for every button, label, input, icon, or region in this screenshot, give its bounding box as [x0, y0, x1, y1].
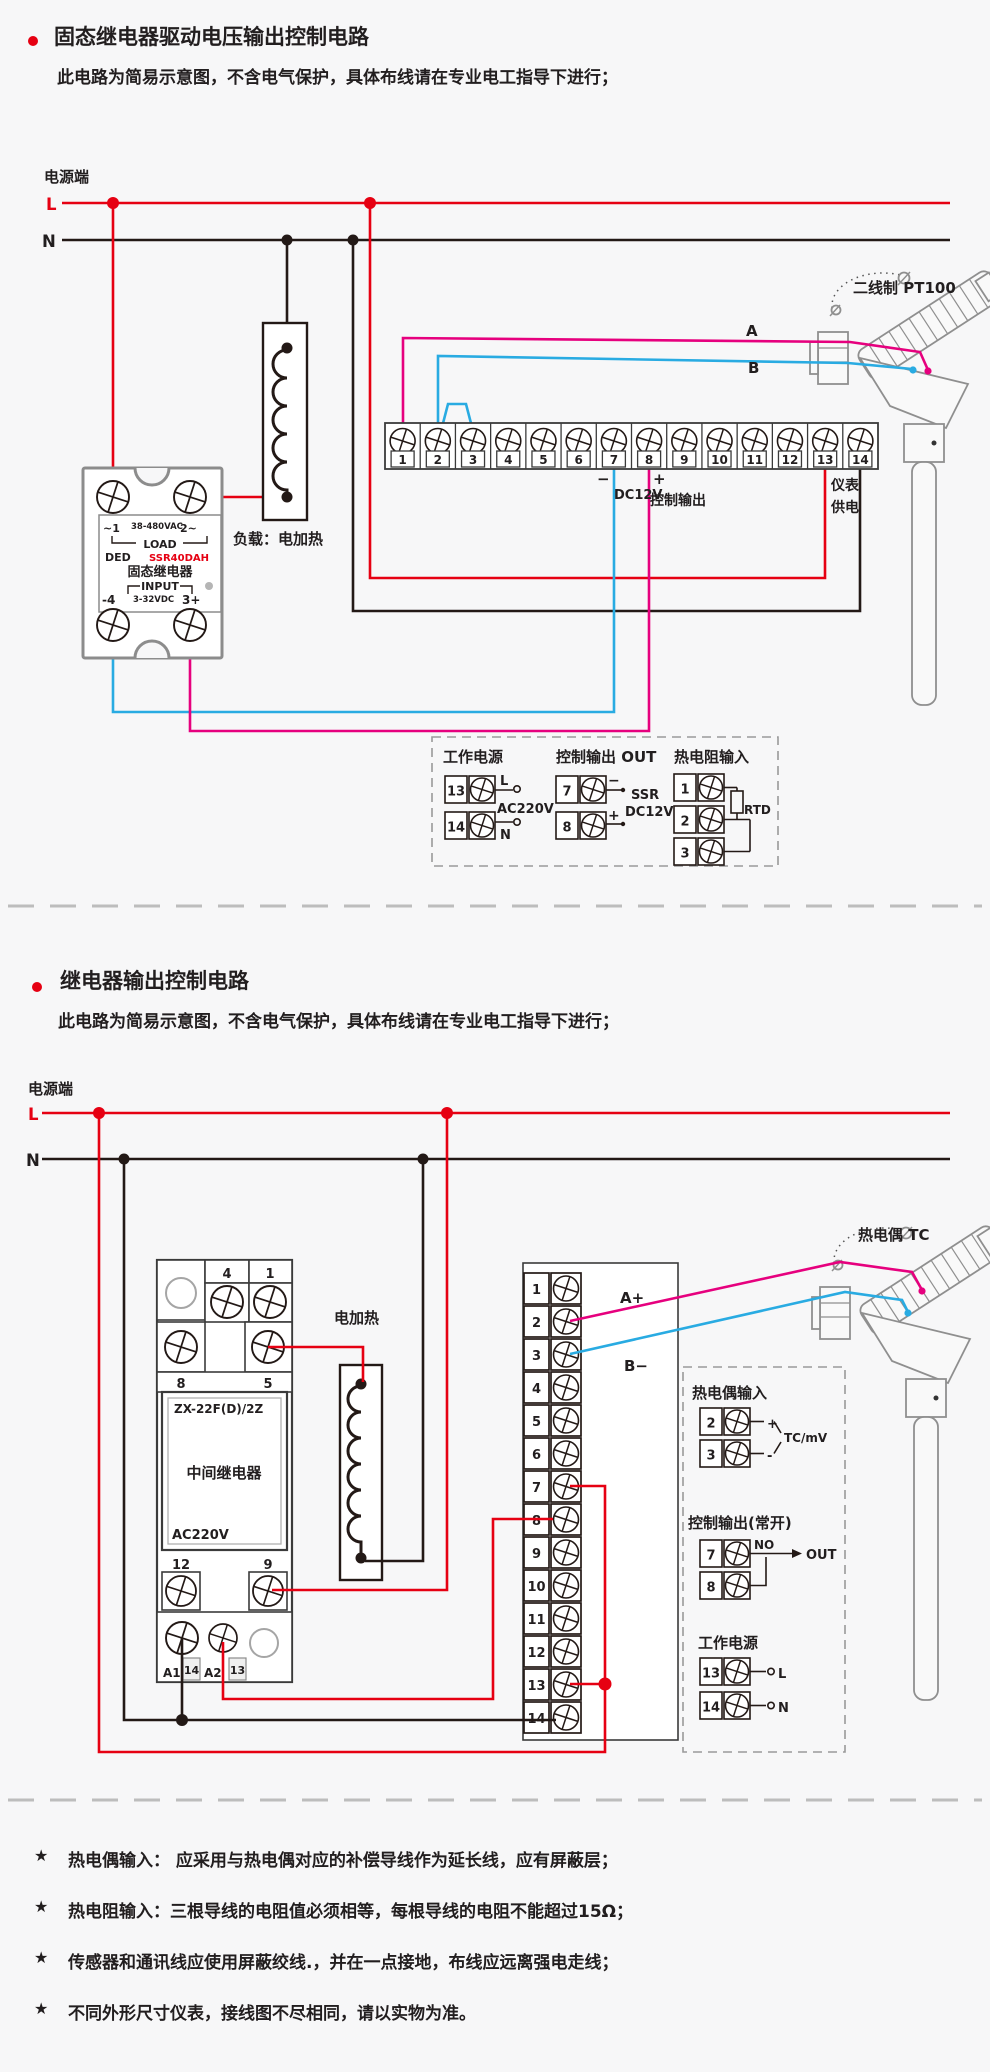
relay-t5: 5	[263, 1377, 272, 1392]
junction-dot	[119, 1154, 130, 1165]
terminal-number: 9	[532, 1547, 541, 1562]
legend-L-label: L	[778, 1667, 786, 1682]
terminal-number: 6	[532, 1448, 541, 1463]
terminal-number: 8	[706, 1581, 715, 1596]
ssr-model: SSR40DAH	[149, 553, 209, 564]
junction-dot	[282, 235, 293, 246]
wire-end-dot	[918, 1287, 925, 1294]
tc-sensor-icon	[812, 1223, 990, 1700]
terminal-number: 13	[702, 1667, 720, 1682]
legend-tcmv-label: TC/mV	[784, 1431, 828, 1445]
terminal-number: 2	[680, 815, 689, 830]
junction-dot	[441, 1107, 453, 1119]
wire-A-label: A	[746, 322, 758, 340]
legend-ac220-label: AC220V	[497, 802, 554, 817]
junction-dot	[418, 1154, 429, 1165]
terminal-number: 14	[447, 821, 465, 836]
relay-t1: 1	[265, 1267, 274, 1282]
heater-load-2	[340, 1365, 382, 1580]
plus-label: +	[653, 470, 666, 488]
terminal-number: 2	[532, 1316, 541, 1331]
circuit-relay-output: 1234567891011121314 4 1 8 5 ZX-22F(D)	[26, 1080, 990, 1752]
terminal-number: 10	[711, 453, 728, 467]
terminal-number: 11	[746, 453, 763, 467]
terminal-number: 10	[527, 1580, 545, 1595]
wire-A	[403, 338, 928, 431]
ssr-name: 固态继电器	[127, 564, 193, 580]
legend-output-title: 控制输出 OUT	[556, 748, 657, 766]
terminal-number: 1	[532, 1283, 541, 1298]
power-source-label: 电源端	[44, 168, 89, 186]
legend-ssr: SSR	[631, 788, 659, 803]
ssr-ac-right: 2~	[180, 522, 197, 535]
relay-t4: 4	[222, 1267, 231, 1282]
terminal-number: 2	[434, 453, 442, 467]
terminal-number: 13	[527, 1679, 545, 1694]
solid-state-relay: ~1 38-480VAC 2~ LOAD DED SSR40DAH 固态继电器 …	[83, 468, 222, 658]
ssr-ac-range: 38-480VAC	[131, 522, 183, 532]
terminal-number: 9	[680, 453, 688, 467]
ssr-dc-range: 3-32VDC	[133, 595, 174, 605]
terminal-number: 13	[447, 785, 465, 800]
junction-dot	[348, 235, 359, 246]
ssr-input-label: INPUT	[141, 580, 179, 593]
terminal-number: 1	[398, 453, 406, 467]
wire-end-dot	[909, 366, 916, 373]
line-N-label: N	[26, 1151, 40, 1170]
terminal-number: 1	[680, 783, 689, 798]
junction-dot	[93, 1107, 105, 1119]
wire-ssr-to-term8	[190, 469, 649, 731]
arrow-icon	[792, 1549, 802, 1558]
relay-t12: 12	[172, 1558, 190, 1573]
minus-label: −	[597, 470, 610, 488]
legend-power-title: 工作电源	[443, 748, 503, 766]
meter-power-label2: 供电	[830, 499, 859, 516]
line-L-label: L	[46, 195, 57, 214]
wire-B-label: B	[748, 359, 759, 377]
ctrl-out-label: 控制输出	[650, 492, 706, 509]
relay-13: 13	[230, 1664, 245, 1677]
power-source-label: 电源端	[28, 1080, 73, 1098]
legend-plus: +	[608, 808, 620, 824]
ssr-dc-right: 3+	[182, 593, 200, 607]
relay-model: ZX-22F(D)/2Z	[174, 1402, 264, 1416]
terminal-number: 14	[702, 1701, 720, 1716]
relay-14: 14	[184, 1664, 200, 1677]
ssr-brand: DED	[105, 551, 131, 564]
legend-box-2: 热电偶输入 23781314 + - TC/mV 控制输出(常开) NO OUT…	[683, 1367, 845, 1752]
terminal-number: 5	[532, 1415, 541, 1430]
line-N-label: N	[42, 232, 56, 251]
load-label: 负载：电加热	[233, 530, 323, 548]
terminal-number: 8	[532, 1514, 541, 1529]
terminal-number: 3	[680, 847, 689, 862]
terminal-number: 8	[562, 821, 571, 836]
sensor-label: 热电偶 TC	[858, 1226, 929, 1244]
ssr-load-label: LOAD	[143, 538, 176, 551]
legend-power-title: 工作电源	[698, 1634, 758, 1652]
legend-box-1: 工作电源 131478 L AC220V N 控制输出 OUT − SSR DC…	[432, 737, 778, 866]
terminal-number: 4	[504, 453, 512, 467]
page: 固态继电器驱动电压输出控制电路 此电路为简易示意图，不含电气保护，具体布线请在专…	[0, 0, 990, 2072]
ssr-ac-left: ~1	[103, 522, 120, 535]
relay-a1: A1	[163, 1666, 181, 1680]
legend-rtd-title: 热电阻输入	[674, 748, 749, 766]
line-L-label: L	[28, 1105, 39, 1124]
legend-N-label: N	[500, 828, 511, 843]
legend-out-label: OUT	[806, 1548, 837, 1563]
legend-tc-minus: -	[767, 1449, 772, 1464]
terminal-number: 3	[706, 1449, 715, 1464]
junction-dot	[364, 197, 376, 209]
heater-label: 电加热	[334, 1309, 379, 1327]
terminal-number: 2	[706, 1417, 715, 1432]
wire-A-label: A+	[620, 1289, 644, 1307]
terminal-number: 6	[574, 453, 582, 467]
heater-load	[263, 323, 307, 520]
terminal-number: 7	[532, 1481, 541, 1496]
terminal-strip-horizontal: 1234567891011121314	[385, 423, 878, 469]
terminal-number: 7	[610, 453, 618, 467]
legend-tc-title: 热电偶输入	[692, 1384, 767, 1402]
ssr-dc-left: -4	[102, 593, 115, 607]
terminal-number: 5	[539, 453, 547, 467]
sensor-label: 二线制 PT100	[853, 279, 956, 297]
junction-dot	[599, 1678, 612, 1691]
relay-a2: A2	[204, 1666, 222, 1680]
wire-end-dot	[924, 367, 931, 374]
led-icon	[205, 582, 213, 590]
legend-minus: −	[608, 773, 620, 789]
legend-L-label: L	[500, 774, 508, 789]
meter-power-label1: 仪表	[830, 477, 860, 494]
terminal-number: 11	[527, 1613, 545, 1628]
terminal-number: 12	[527, 1646, 545, 1661]
legend-N-label: N	[778, 1701, 789, 1716]
terminal-number: 7	[562, 785, 571, 800]
terminal-number: 14	[852, 453, 869, 467]
legend-no-label: NO	[754, 1538, 774, 1552]
terminal-number: 8	[645, 453, 653, 467]
terminal-number: 4	[532, 1382, 541, 1397]
terminal-number: 7	[706, 1549, 715, 1564]
legend-dc12v: DC12V	[625, 805, 673, 820]
terminal-number: 3	[469, 453, 477, 467]
terminal-number: 12	[782, 453, 799, 467]
relay-volt: AC220V	[172, 1528, 229, 1543]
terminal-number: 13	[817, 453, 834, 467]
wiring-diagram-svg: ~1 38-480VAC 2~ LOAD DED SSR40DAH 固态继电器 …	[0, 0, 990, 2072]
wire-end-dot	[904, 1309, 911, 1316]
circuit-solid-state-relay: ~1 38-480VAC 2~ LOAD DED SSR40DAH 固态继电器 …	[42, 168, 990, 866]
relay-t9: 9	[263, 1558, 272, 1573]
legend-output-title: 控制输出(常开)	[688, 1514, 792, 1532]
intermediate-relay: 4 1 8 5 ZX-22F(D)/2Z 中间继电器 AC220V 12 9	[157, 1260, 292, 1682]
relay-t8: 8	[176, 1377, 185, 1392]
terminal-number: 3	[532, 1349, 541, 1364]
relay-name: 中间继电器	[186, 1464, 262, 1482]
junction-dot	[107, 197, 119, 209]
junction-dot	[176, 1714, 188, 1726]
legend-rtd-label: RTD	[744, 803, 771, 817]
wire-B-label: B−	[624, 1357, 648, 1375]
